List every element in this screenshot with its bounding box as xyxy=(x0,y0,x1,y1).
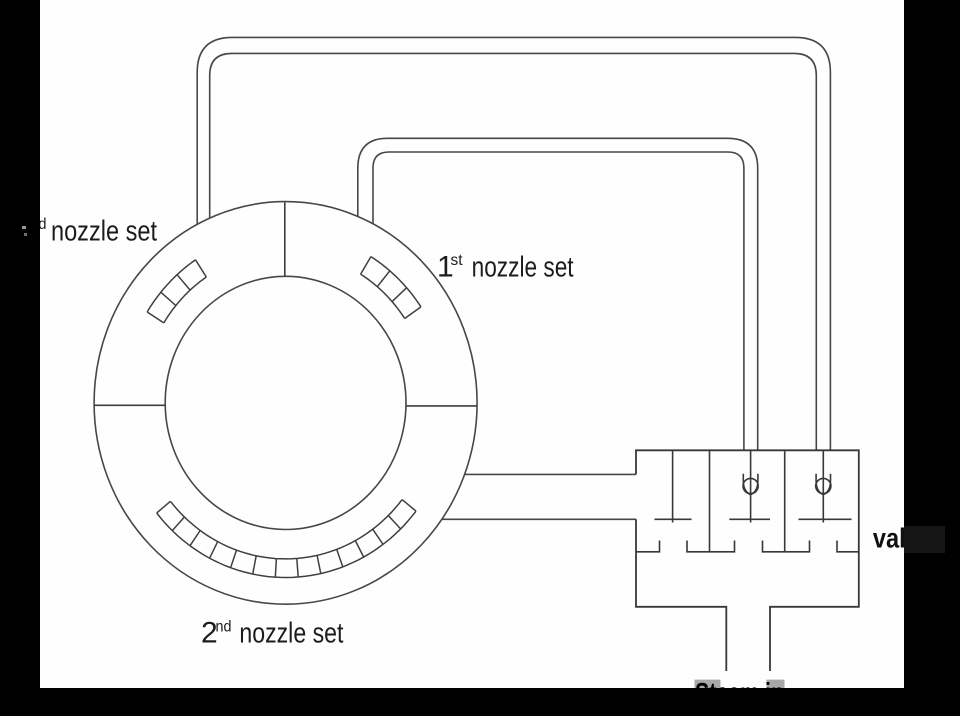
svg-text:nozzle set: nozzle set xyxy=(472,252,574,284)
svg-text:nozzle set: nozzle set xyxy=(51,215,157,247)
svg-text:nozzle set: nozzle set xyxy=(239,618,343,650)
svg-text:nd: nd xyxy=(216,619,232,636)
svg-text:st: st xyxy=(451,252,464,269)
